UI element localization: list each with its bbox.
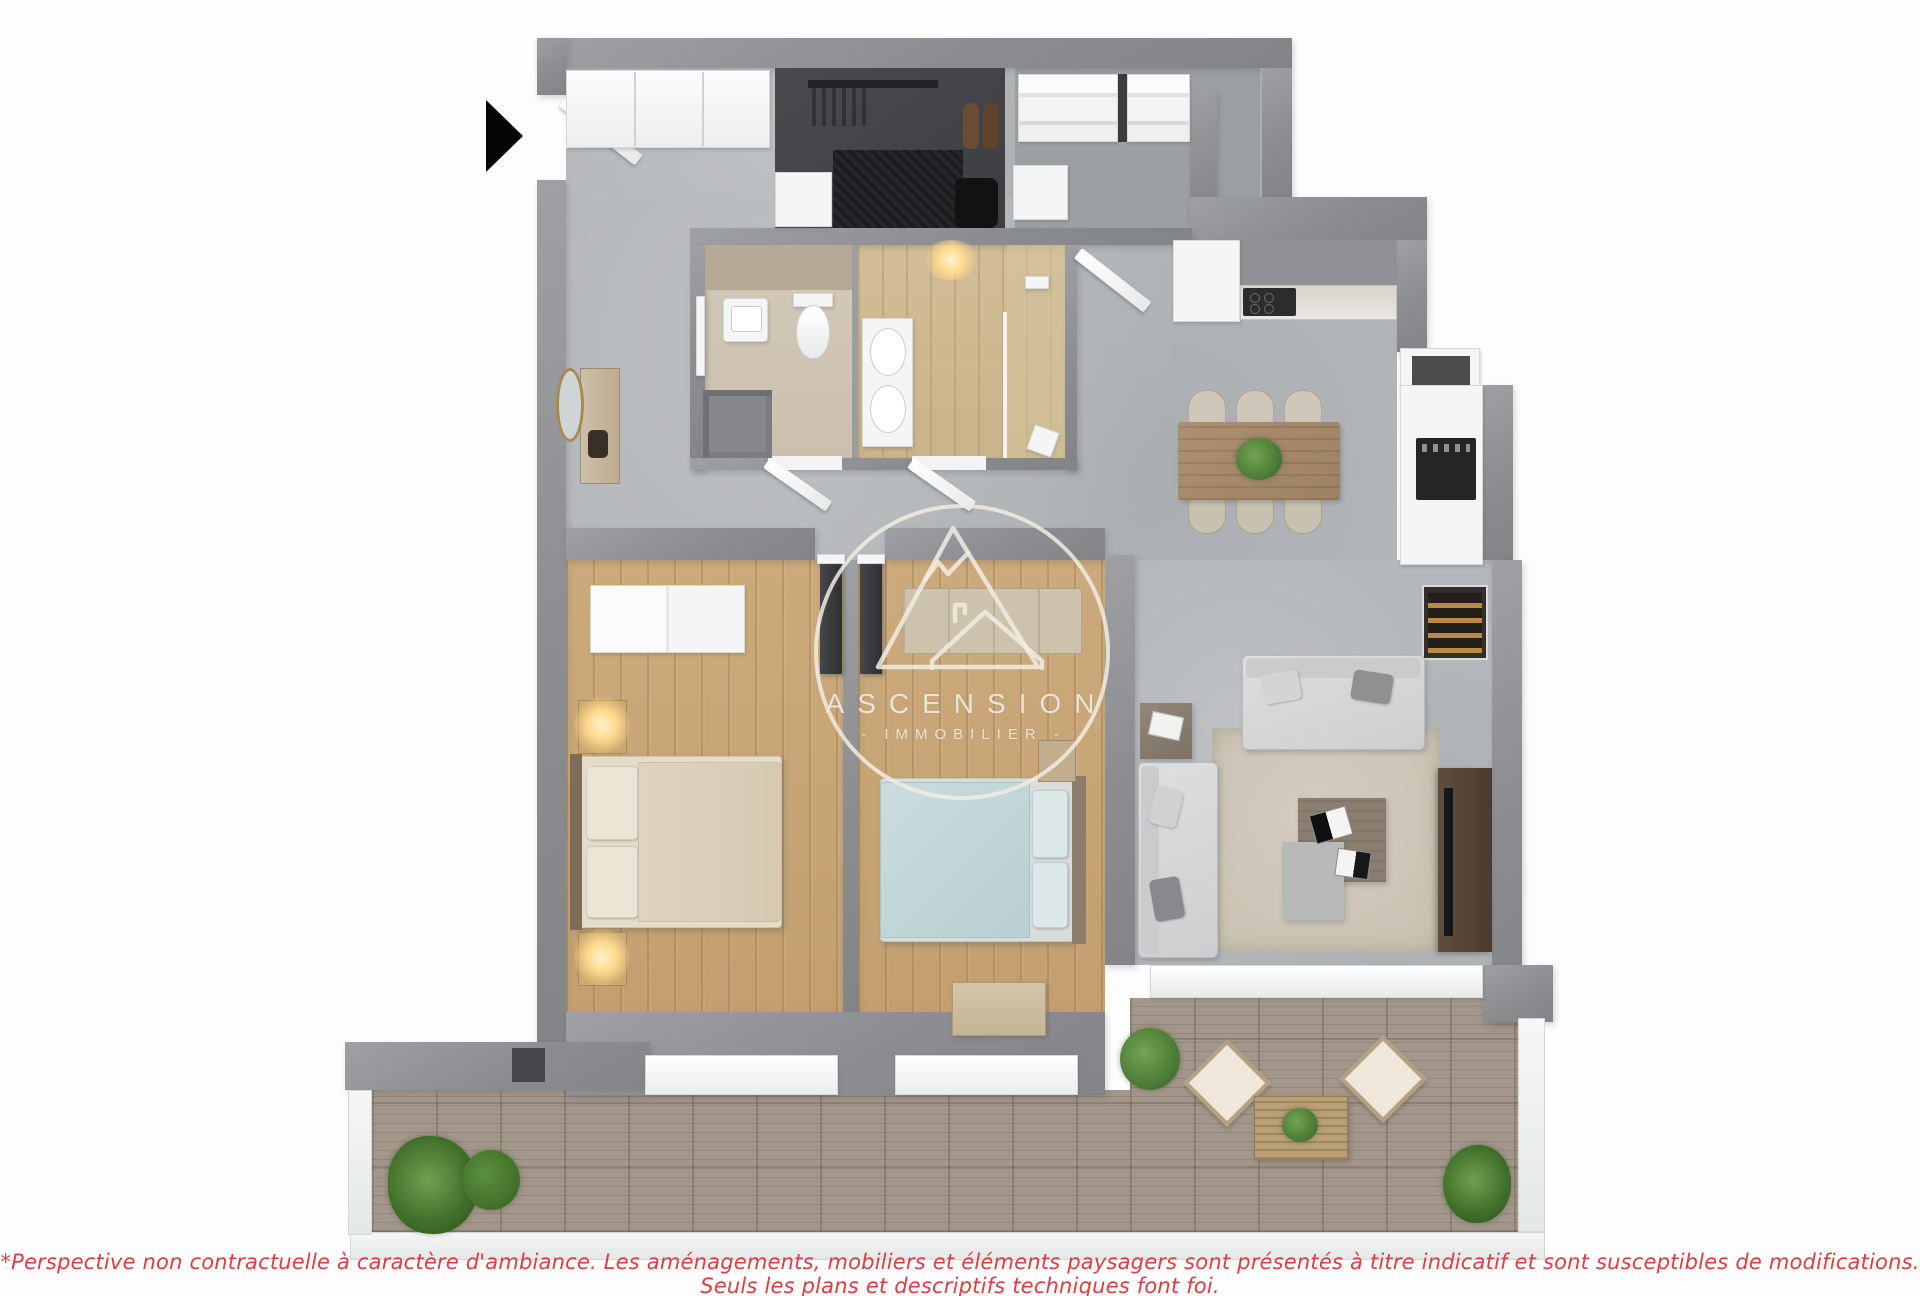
vanity-basin (870, 385, 906, 433)
wc-wall-band (705, 245, 852, 290)
wall-bedroom1-top (566, 528, 815, 560)
closet-shelf-left (1018, 74, 1118, 142)
potted-plant (1120, 1028, 1180, 1090)
terrace-railing-right (1518, 1018, 1545, 1232)
oven-controls (1422, 444, 1470, 452)
wall-kitchen-right (1397, 240, 1427, 352)
potted-plant (1282, 1108, 1318, 1142)
wall-top (537, 38, 1292, 68)
tv-screen (1444, 788, 1453, 936)
bedroom1-door-cap (817, 554, 845, 564)
dining-chair (1188, 496, 1226, 534)
niche-opening (1412, 356, 1470, 386)
kitchen-upper-band (1240, 240, 1397, 285)
potted-plant (462, 1150, 520, 1210)
wall-living-bottom-corner (1483, 965, 1553, 1022)
hanging-rail (808, 80, 938, 88)
bed1-pillow (586, 766, 638, 840)
bed1-duvet (638, 762, 782, 922)
watermark-brand: ASCENSION (0, 688, 1920, 720)
toilet-bowl (796, 305, 830, 359)
wall-bedroom2-living (1105, 555, 1135, 965)
dressing-cabinet (775, 172, 832, 227)
dressing-rug (833, 150, 963, 228)
bedroom1-wardrobe (590, 585, 745, 653)
hanging-clothes (812, 88, 872, 126)
wall-living-right (1492, 560, 1522, 1022)
shower-head (1025, 276, 1049, 289)
closet-shelf-right (1127, 74, 1190, 142)
bedroom2-door-panel (860, 562, 882, 674)
bed2-duvet (880, 782, 1030, 938)
wine-bottles (1428, 593, 1482, 653)
terrace-wall-niche (512, 1048, 545, 1082)
watermark-tagline: - IMMOBILIER - (0, 726, 1920, 743)
dining-chair (1284, 496, 1322, 534)
wall-kitchen-top (1190, 197, 1427, 240)
bed2-headboard (1072, 776, 1086, 944)
dining-chair (1236, 496, 1274, 534)
coffee-table-low (1282, 842, 1344, 920)
wall-top-right-corner (1262, 68, 1292, 197)
bed1-pillow (586, 846, 638, 918)
wc-sink-basin (731, 306, 762, 332)
cooktop-burner (1264, 304, 1274, 314)
potted-plant (1443, 1145, 1511, 1223)
bedroom2-door-cap (857, 554, 885, 564)
bedside-lamp (574, 928, 630, 986)
bedroom2-bench (952, 982, 1046, 1036)
bedroom2-window (895, 1055, 1078, 1095)
wall-bedroom-divider (843, 560, 858, 1012)
wall-bedroom2-top (885, 528, 1105, 560)
table-plant (1236, 438, 1282, 480)
living-sliding-door-track (1150, 965, 1483, 998)
wall-shower-right (1065, 245, 1077, 470)
boots (983, 103, 999, 149)
kitchen-column (1173, 240, 1240, 322)
console-table (580, 368, 620, 484)
entry-closet (566, 70, 770, 148)
laundry-box (703, 390, 772, 458)
bed2-pillow (1032, 862, 1068, 928)
entrance-arrow-icon (486, 100, 523, 172)
bedroom1-window (645, 1055, 838, 1095)
bed2-pillow (1032, 790, 1068, 858)
ceiling-light (922, 240, 980, 280)
clothes-pile (955, 178, 998, 228)
entry-closet-divider (634, 72, 636, 146)
coffee-table-book (1334, 848, 1372, 880)
console-decor (588, 430, 608, 458)
wall-left-main (537, 180, 566, 1048)
wall-bath-bottom (690, 458, 1077, 470)
terrace-railing-left (348, 1090, 372, 1235)
wall-wc-shower-divider (852, 245, 858, 458)
entry-closet-divider (702, 72, 704, 146)
cooktop-burner (1264, 293, 1274, 303)
wall-terrace-left (345, 1042, 650, 1090)
wc-radiator (696, 296, 705, 376)
bedroom2-wardrobe (902, 588, 1082, 654)
wall-right-mid (1483, 385, 1513, 560)
wall-mirror (556, 368, 584, 442)
wall-left-stub (537, 38, 566, 95)
vanity-basin (870, 328, 906, 376)
bedroom2-nightstand (1038, 740, 1076, 782)
boots (963, 103, 979, 149)
shower-glass (1003, 312, 1007, 458)
bedroom1-door-panel (820, 562, 842, 674)
closet-cabinet (1013, 165, 1068, 220)
disclaimer-text: *Perspective non contractuelle à caractè… (0, 1250, 1920, 1296)
bed1-headboard (570, 754, 582, 930)
closet-shelf-rail (1118, 74, 1127, 142)
floor-plan-canvas: ASCENSION - IMMOBILIER - *Perspective no… (0, 0, 1920, 1296)
cooktop-burner (1250, 304, 1260, 314)
cooktop-burner (1250, 293, 1260, 303)
